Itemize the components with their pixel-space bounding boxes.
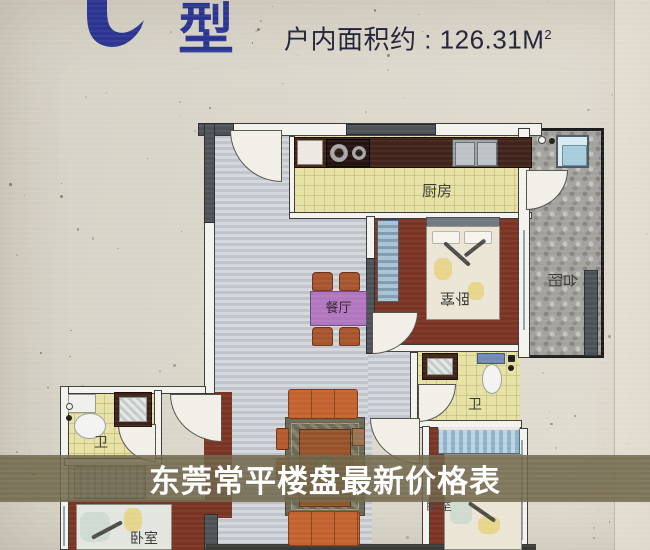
caption-text: 东莞常平楼盘最新价格表 [149,456,501,501]
washing-machine [556,135,589,168]
speckle-dot [542,372,545,375]
balcony-wall-column [584,270,598,356]
speckle-dot [549,411,550,412]
washer-drum [562,145,587,166]
speckle-dot [170,31,172,33]
sink-basin [455,142,475,166]
speckle-dot [209,107,211,109]
unit-type-label: 型 [178,0,234,60]
speckle-dot [147,158,148,159]
kitchen-sink [297,140,323,165]
speckle-dot [16,451,18,453]
speckle-dot [608,335,611,338]
speckle-dot [9,183,12,186]
toilet-bowl [482,364,502,394]
area-exponent: 2 [544,27,552,42]
speckle-dot [60,195,63,198]
speckle-dot [16,254,18,256]
wall-column [346,124,436,135]
speckle-dot [47,386,50,389]
room-label-kitchen: 厨房 [422,184,452,201]
speckle-dot [550,423,552,425]
speckle-dot [609,521,610,522]
blanket-pattern [434,258,452,280]
dining-chair [312,327,333,346]
speckle-dot [106,92,107,93]
speckle-dot [260,20,262,22]
speckle-dot [598,510,599,511]
speckle-dot [180,116,182,118]
brand-letter-logo [81,0,148,52]
dining-chair [339,327,360,346]
toilet-tank [477,353,505,364]
bath-fixture [66,403,73,410]
speckle-dot [282,83,284,85]
speckle-dot [17,81,18,82]
speckle-dot [365,111,367,113]
speckle-dot [593,527,595,529]
window-line [63,506,65,546]
blanket-pattern [468,282,484,300]
speckle-dot [159,370,162,373]
floor-drain [538,136,546,144]
speckle-dot [77,228,80,231]
speckle-dot [24,195,25,196]
unit-area-text: 户内面积约 : 126.31M2 [284,20,552,55]
speckle-dot [202,228,204,230]
shower-stall [114,392,152,427]
speckle-dot [179,101,181,103]
bath-fixture [508,365,514,371]
wall [410,352,418,428]
speckle-dot [587,109,589,111]
bath-fixture [508,355,515,362]
room-label-balcony: 阳台 [546,272,576,289]
speckle-dot [374,9,376,11]
speckle-dot [85,96,87,98]
sofa [288,389,358,419]
speckle-dot [593,537,595,539]
area-value: 户内面积约 : 126.31M [284,25,544,55]
speckle-dot [548,1,549,2]
speckle-dot [257,28,260,31]
room-label-master-bedroom: 卧室 [440,289,470,306]
wall-column [204,123,215,223]
bath-fixture [66,415,72,421]
speckle-dot [272,6,274,8]
speckle-dot [194,130,196,132]
side-table [352,428,365,446]
window-line [523,230,525,330]
speckle-dot [387,69,389,71]
speckle-dot [133,252,135,254]
speckle-dot [404,97,405,98]
tap-fixture [549,138,555,144]
speckle-dot [406,536,409,539]
speckle-dot [61,183,62,184]
speckle-dot [611,94,613,96]
shower-pan [427,358,453,375]
speckle-dot [297,55,298,56]
speckle-dot [418,14,420,16]
speckle-dot [117,248,118,249]
armchair [276,428,289,450]
speckle-dot [603,445,604,446]
master-wardrobe [377,220,399,302]
speckle-dot [555,447,557,449]
blanket-pattern [124,508,142,532]
dining-chair [339,272,360,291]
speckle-dot [181,231,182,232]
room-label-dining: 餐厅 [325,301,351,315]
double-sink [452,139,498,167]
floorplan-poster-photo: 型 户内面积约 : 126.31M2 [0,0,650,550]
caption-banner: 东莞常平楼盘最新价格表 [0,455,650,502]
shower-pan [119,397,147,422]
hallway-floor [368,352,416,426]
shower-stall [422,353,458,380]
room-label-center-bath: 卫 [468,398,482,413]
room-label-left-bedroom: 卧室 [130,532,158,547]
speckle-dot [173,364,176,367]
dining-table: 餐厅 [310,291,367,326]
stove-burner [352,146,366,160]
speckle-dot [574,415,576,417]
dining-chair [312,272,333,291]
speckle-dot [40,352,42,354]
speckle-dot [92,237,94,239]
sofa [288,511,360,546]
speckle-dot [29,450,31,452]
speckle-dot [101,348,102,349]
sink-basin [477,142,497,166]
stove-burner [330,144,348,162]
window-curtain [438,427,520,454]
speckle-dot [69,356,71,358]
speckle-dot [70,330,72,332]
speckle-dot [252,42,253,43]
room-label-left-bath: 卫 [94,436,108,451]
